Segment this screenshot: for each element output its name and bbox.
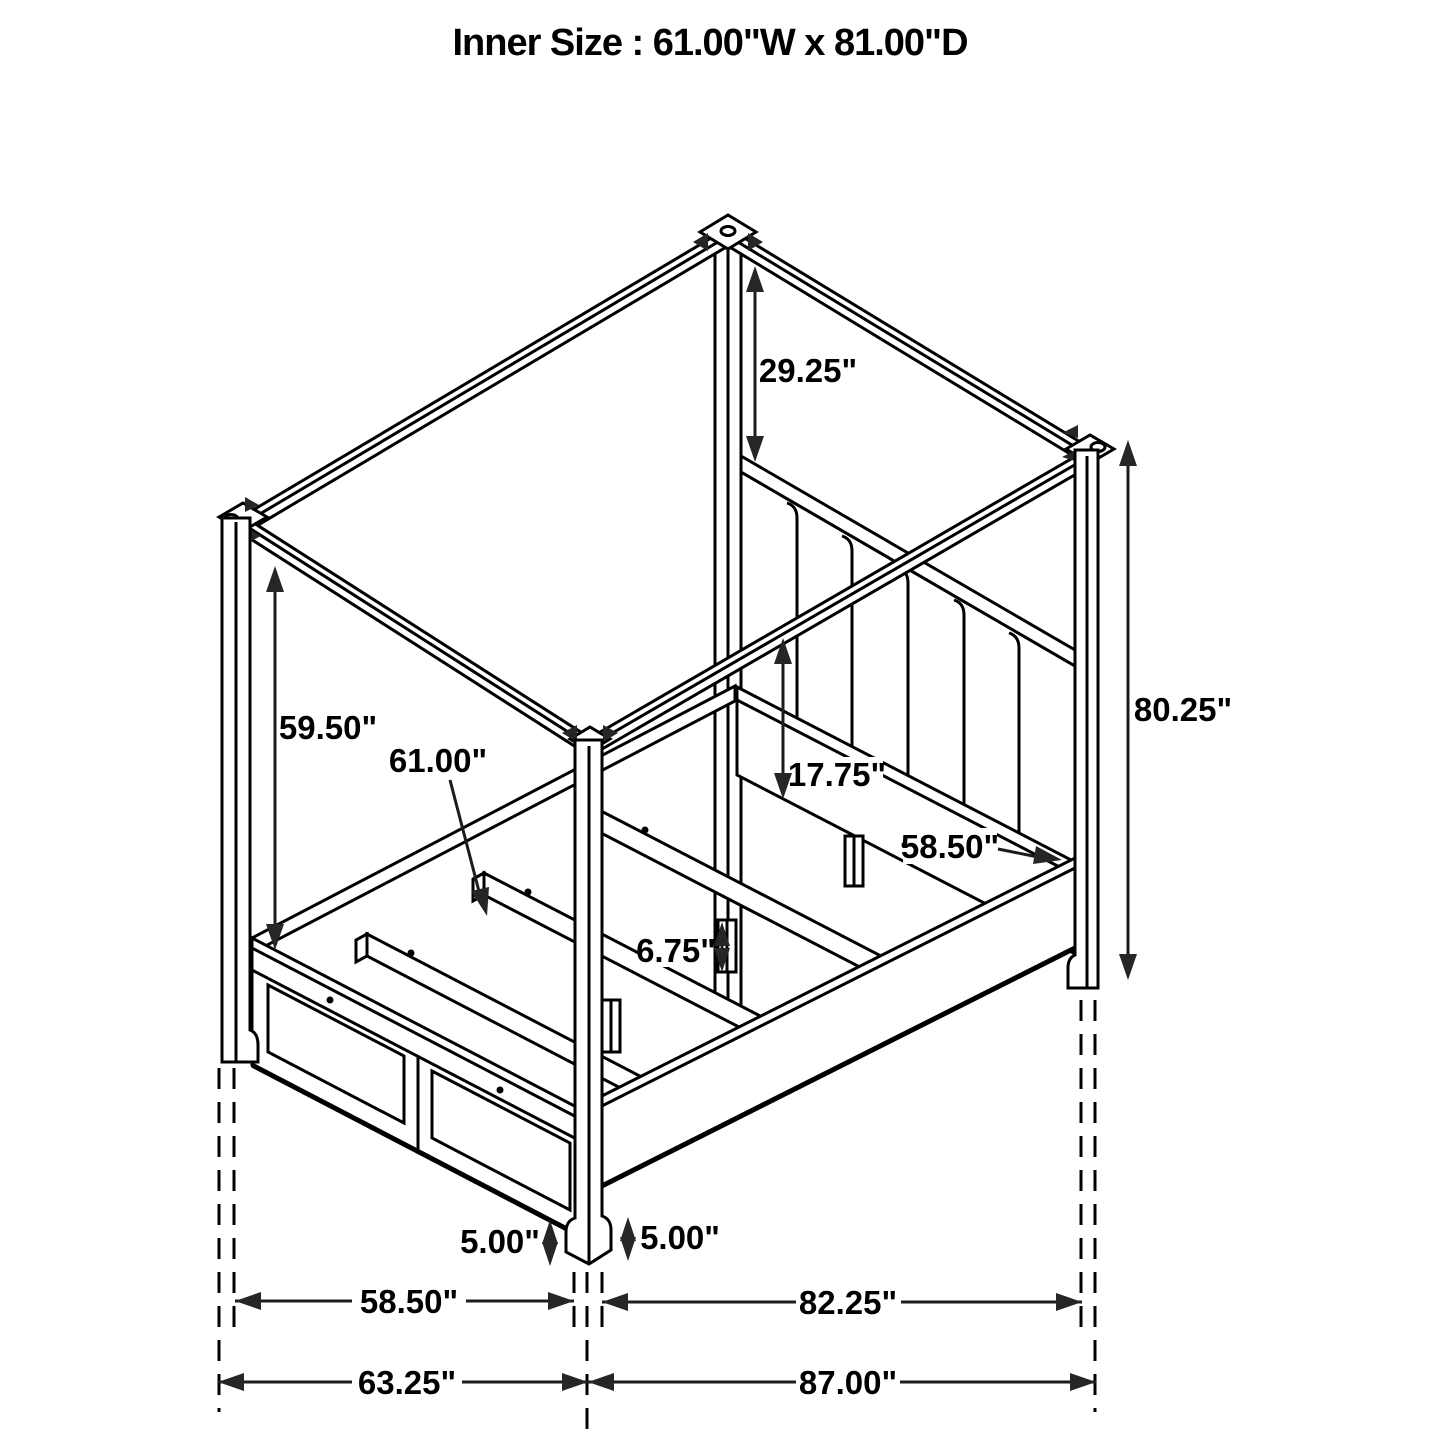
dim-label: 5.00" [460,1223,540,1260]
dim-label: 87.00" [799,1364,897,1401]
dim-label: 58.50" [901,828,999,865]
dim-label: 80.25" [1134,691,1232,728]
dim-label: 5.00" [640,1219,720,1256]
diagram-title: Inner Size : 61.00"W x 81.00"D [452,22,967,64]
dim-label: 59.50" [279,709,377,746]
dim-label: 17.75" [788,756,886,793]
dim-label: 63.25" [358,1364,456,1401]
dim-label: 82.25" [799,1284,897,1321]
bed-dimension-diagram: Inner Size : 61.00"W x 81.00"D [0,0,1445,1445]
dim-label: 29.25" [759,352,857,389]
dim-label: 61.00" [389,742,487,779]
dim-label: 58.50" [360,1283,458,1320]
dim-label: 6.75" [636,932,716,969]
